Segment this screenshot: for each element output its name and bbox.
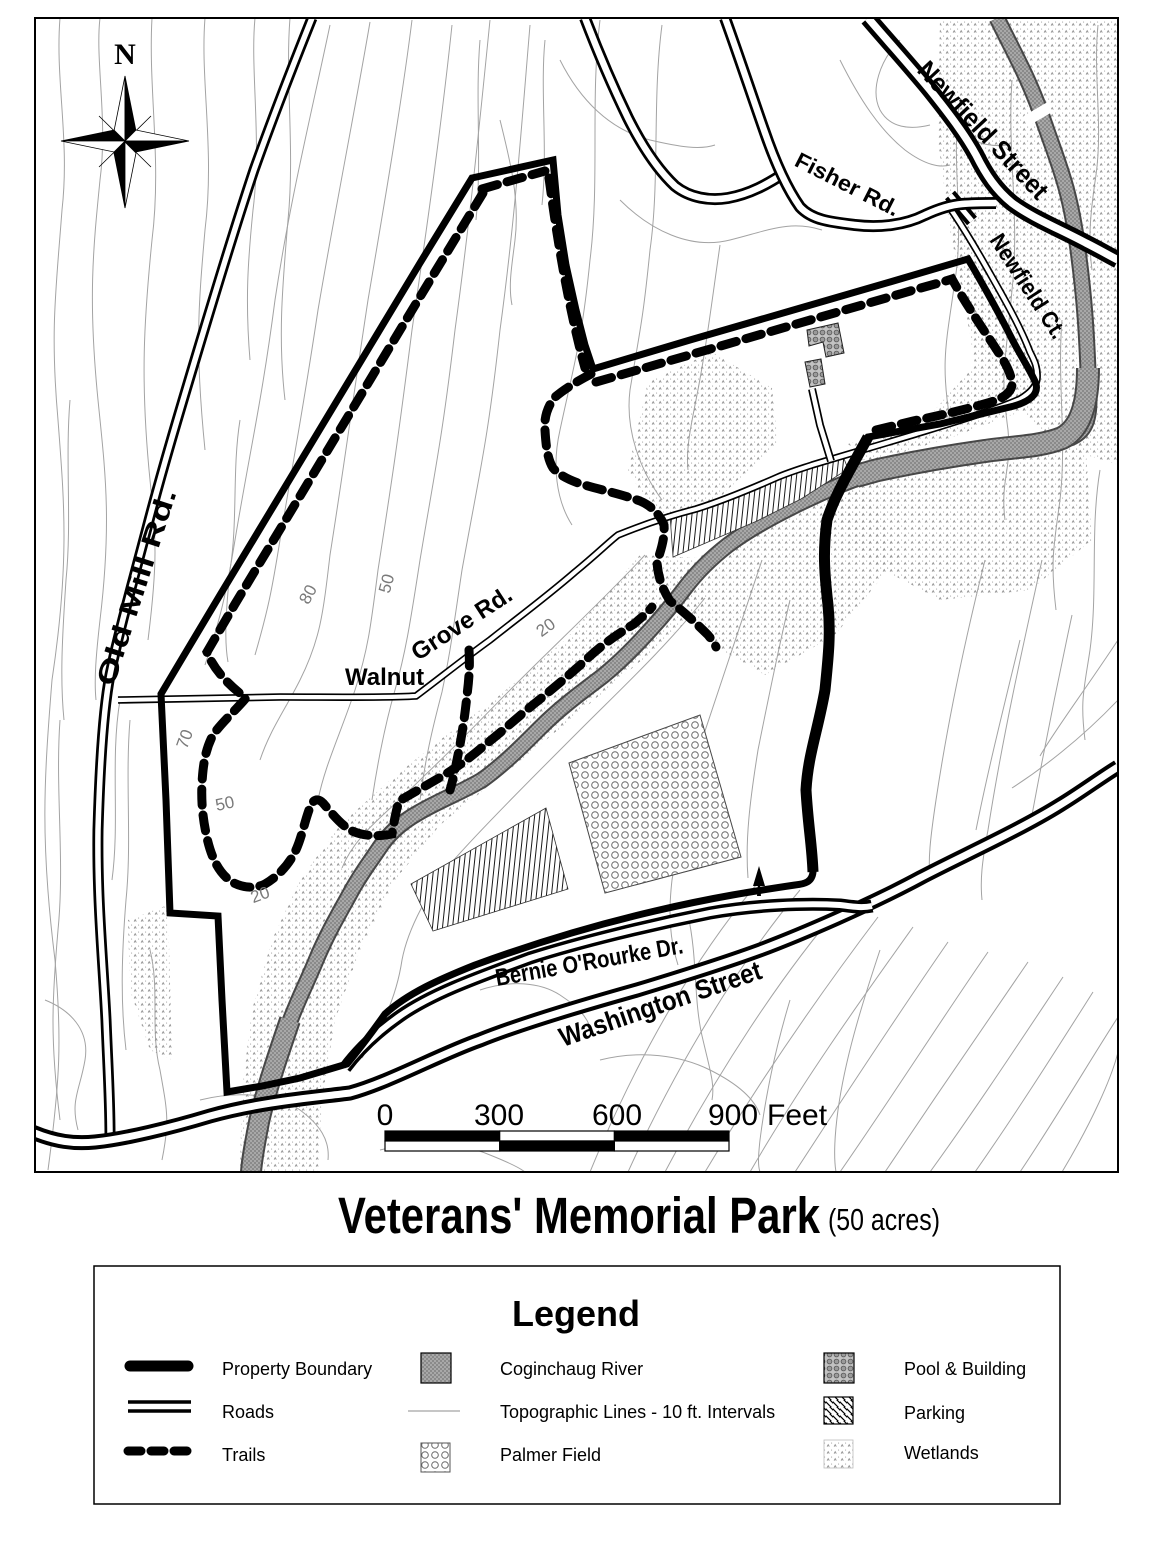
svg-text:600: 600 <box>592 1099 642 1132</box>
svg-text:Veterans' Memorial Park: Veterans' Memorial Park <box>338 1187 821 1244</box>
svg-text:Coginchaug River: Coginchaug River <box>500 1359 643 1379</box>
svg-text:Pool & Building: Pool & Building <box>904 1359 1026 1379</box>
svg-text:Property Boundary: Property Boundary <box>222 1359 372 1379</box>
svg-text:Wetlands: Wetlands <box>904 1443 979 1463</box>
svg-text:Trails: Trails <box>222 1445 265 1465</box>
svg-text:0: 0 <box>377 1099 394 1132</box>
svg-text:900: 900 <box>708 1099 758 1132</box>
svg-text:Walnut: Walnut <box>345 664 424 691</box>
svg-text:50: 50 <box>214 792 236 815</box>
svg-text:Topographic Lines - 10 ft. Int: Topographic Lines - 10 ft. Intervals <box>500 1402 775 1422</box>
svg-text:Roads: Roads <box>222 1402 274 1422</box>
svg-text:300: 300 <box>474 1099 524 1132</box>
svg-text:(50 acres): (50 acres) <box>828 1202 940 1237</box>
svg-text:Parking: Parking <box>904 1403 965 1423</box>
svg-text:N: N <box>114 38 136 71</box>
svg-text:Feet: Feet <box>767 1099 828 1132</box>
svg-text:Palmer Field: Palmer Field <box>500 1445 601 1465</box>
svg-text:Legend: Legend <box>512 1293 640 1334</box>
